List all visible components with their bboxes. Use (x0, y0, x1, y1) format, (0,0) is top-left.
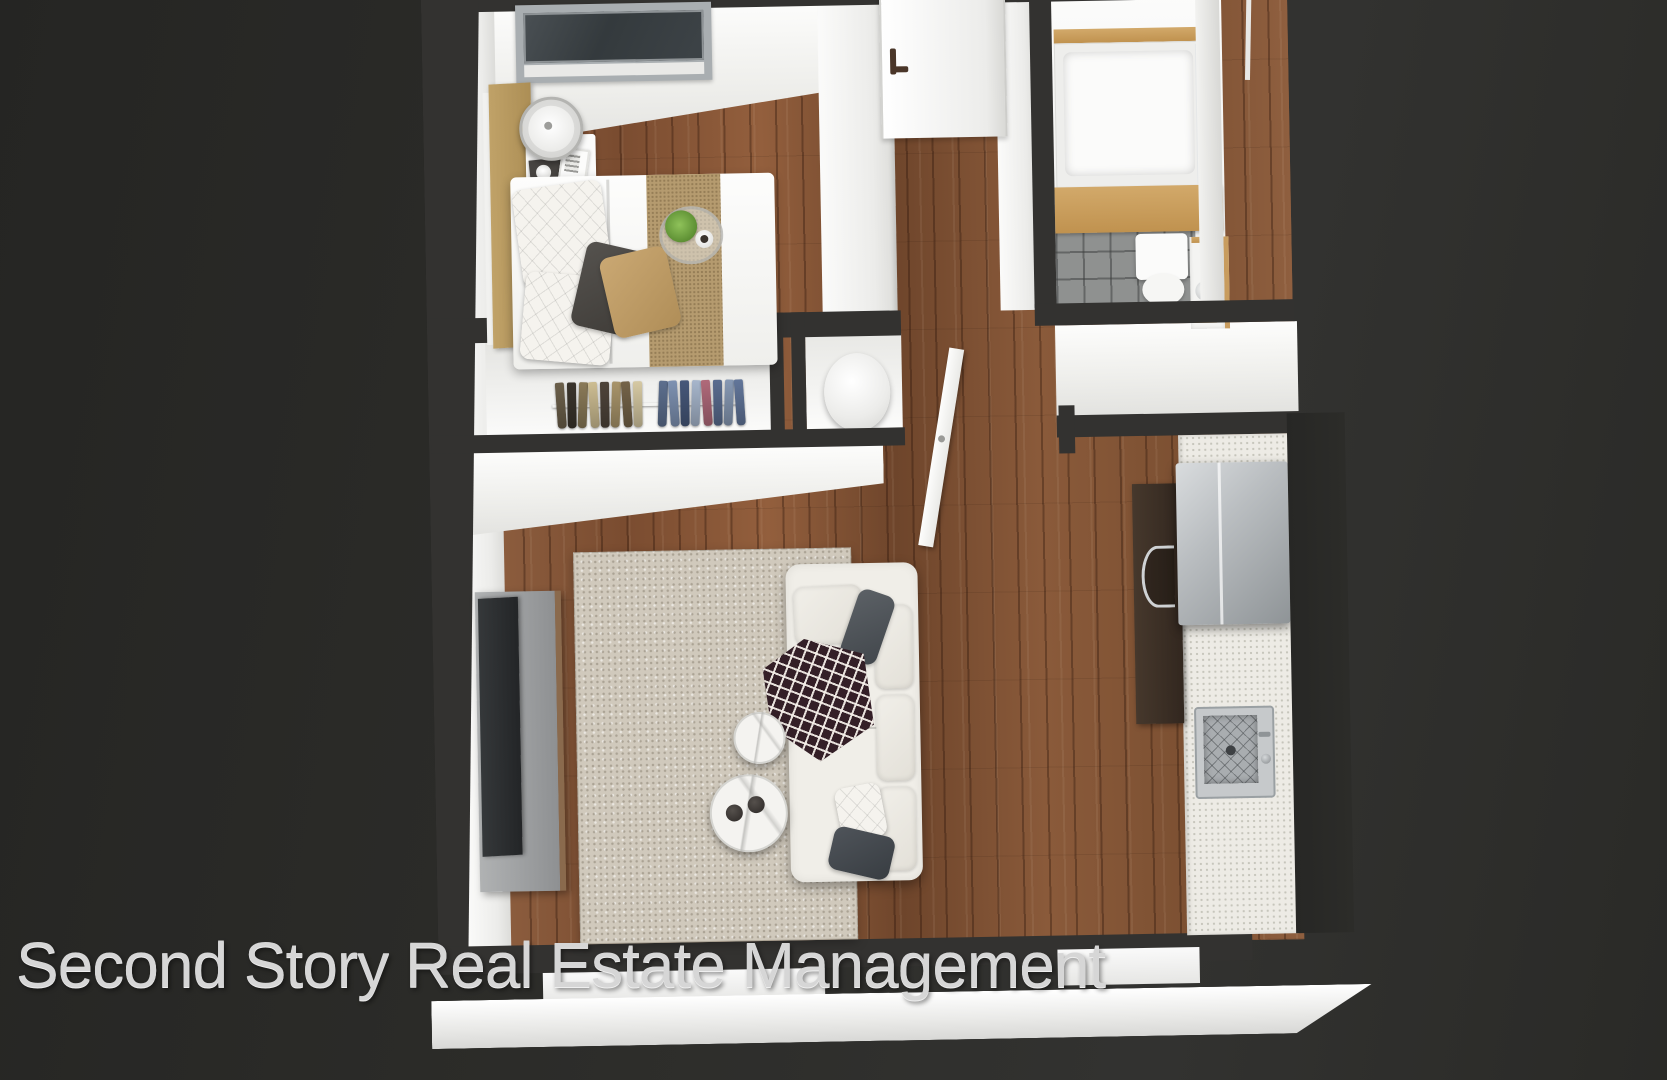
sink-faucet-icon (1258, 732, 1270, 737)
sink-faucet-handle-icon (1261, 754, 1271, 764)
sink-drain-icon (1226, 745, 1236, 755)
cup-2 (748, 796, 765, 813)
garment-icon (691, 380, 702, 426)
refrigerator (1176, 461, 1291, 625)
sink-basin (1203, 715, 1258, 784)
garment-icon (578, 382, 589, 428)
oven-icon (1141, 545, 1175, 608)
garment-icon (668, 380, 680, 427)
kitchen-sink (1194, 706, 1276, 799)
cup-1 (726, 804, 743, 821)
tray-cup-coffee (700, 235, 708, 243)
window-sill (524, 62, 704, 77)
garment-icon (621, 381, 633, 428)
entry-door-handle-lever (894, 66, 908, 72)
closet-partition-2 (791, 312, 807, 432)
refrigerator-door-divider (1218, 463, 1224, 625)
garment-icon (734, 379, 746, 426)
bed (510, 173, 777, 370)
sofa-back-cushion-2 (876, 694, 916, 781)
entry-door (879, 0, 1008, 139)
lamp-finial (544, 122, 552, 130)
garment-icon (600, 382, 610, 428)
door-handle-icon (938, 435, 946, 443)
garment-icon (701, 380, 713, 427)
floor-plan (395, 0, 1405, 1079)
garment-icon (567, 382, 577, 428)
garment-icon (658, 381, 669, 427)
garment-icon (633, 381, 643, 427)
below-bathroom-wall-face (1055, 321, 1299, 417)
garment-icon (611, 381, 622, 427)
tv-screen (478, 597, 523, 857)
garment-icon (724, 379, 735, 425)
east-wall-shadow (1287, 412, 1355, 933)
garment-icon (680, 380, 690, 426)
bathtub (1054, 41, 1219, 192)
garment-icon (555, 382, 567, 429)
garment-icon (713, 380, 723, 426)
kitchen-wall-stub (1058, 405, 1075, 453)
tv-console (475, 591, 566, 893)
bathtub-basin (1063, 50, 1195, 176)
window (515, 2, 712, 84)
window-glass (523, 10, 704, 63)
watermark-text: Second Story Real Estate Management (16, 928, 1105, 1002)
closet-clothes (556, 379, 757, 435)
garment-icon (588, 382, 600, 429)
